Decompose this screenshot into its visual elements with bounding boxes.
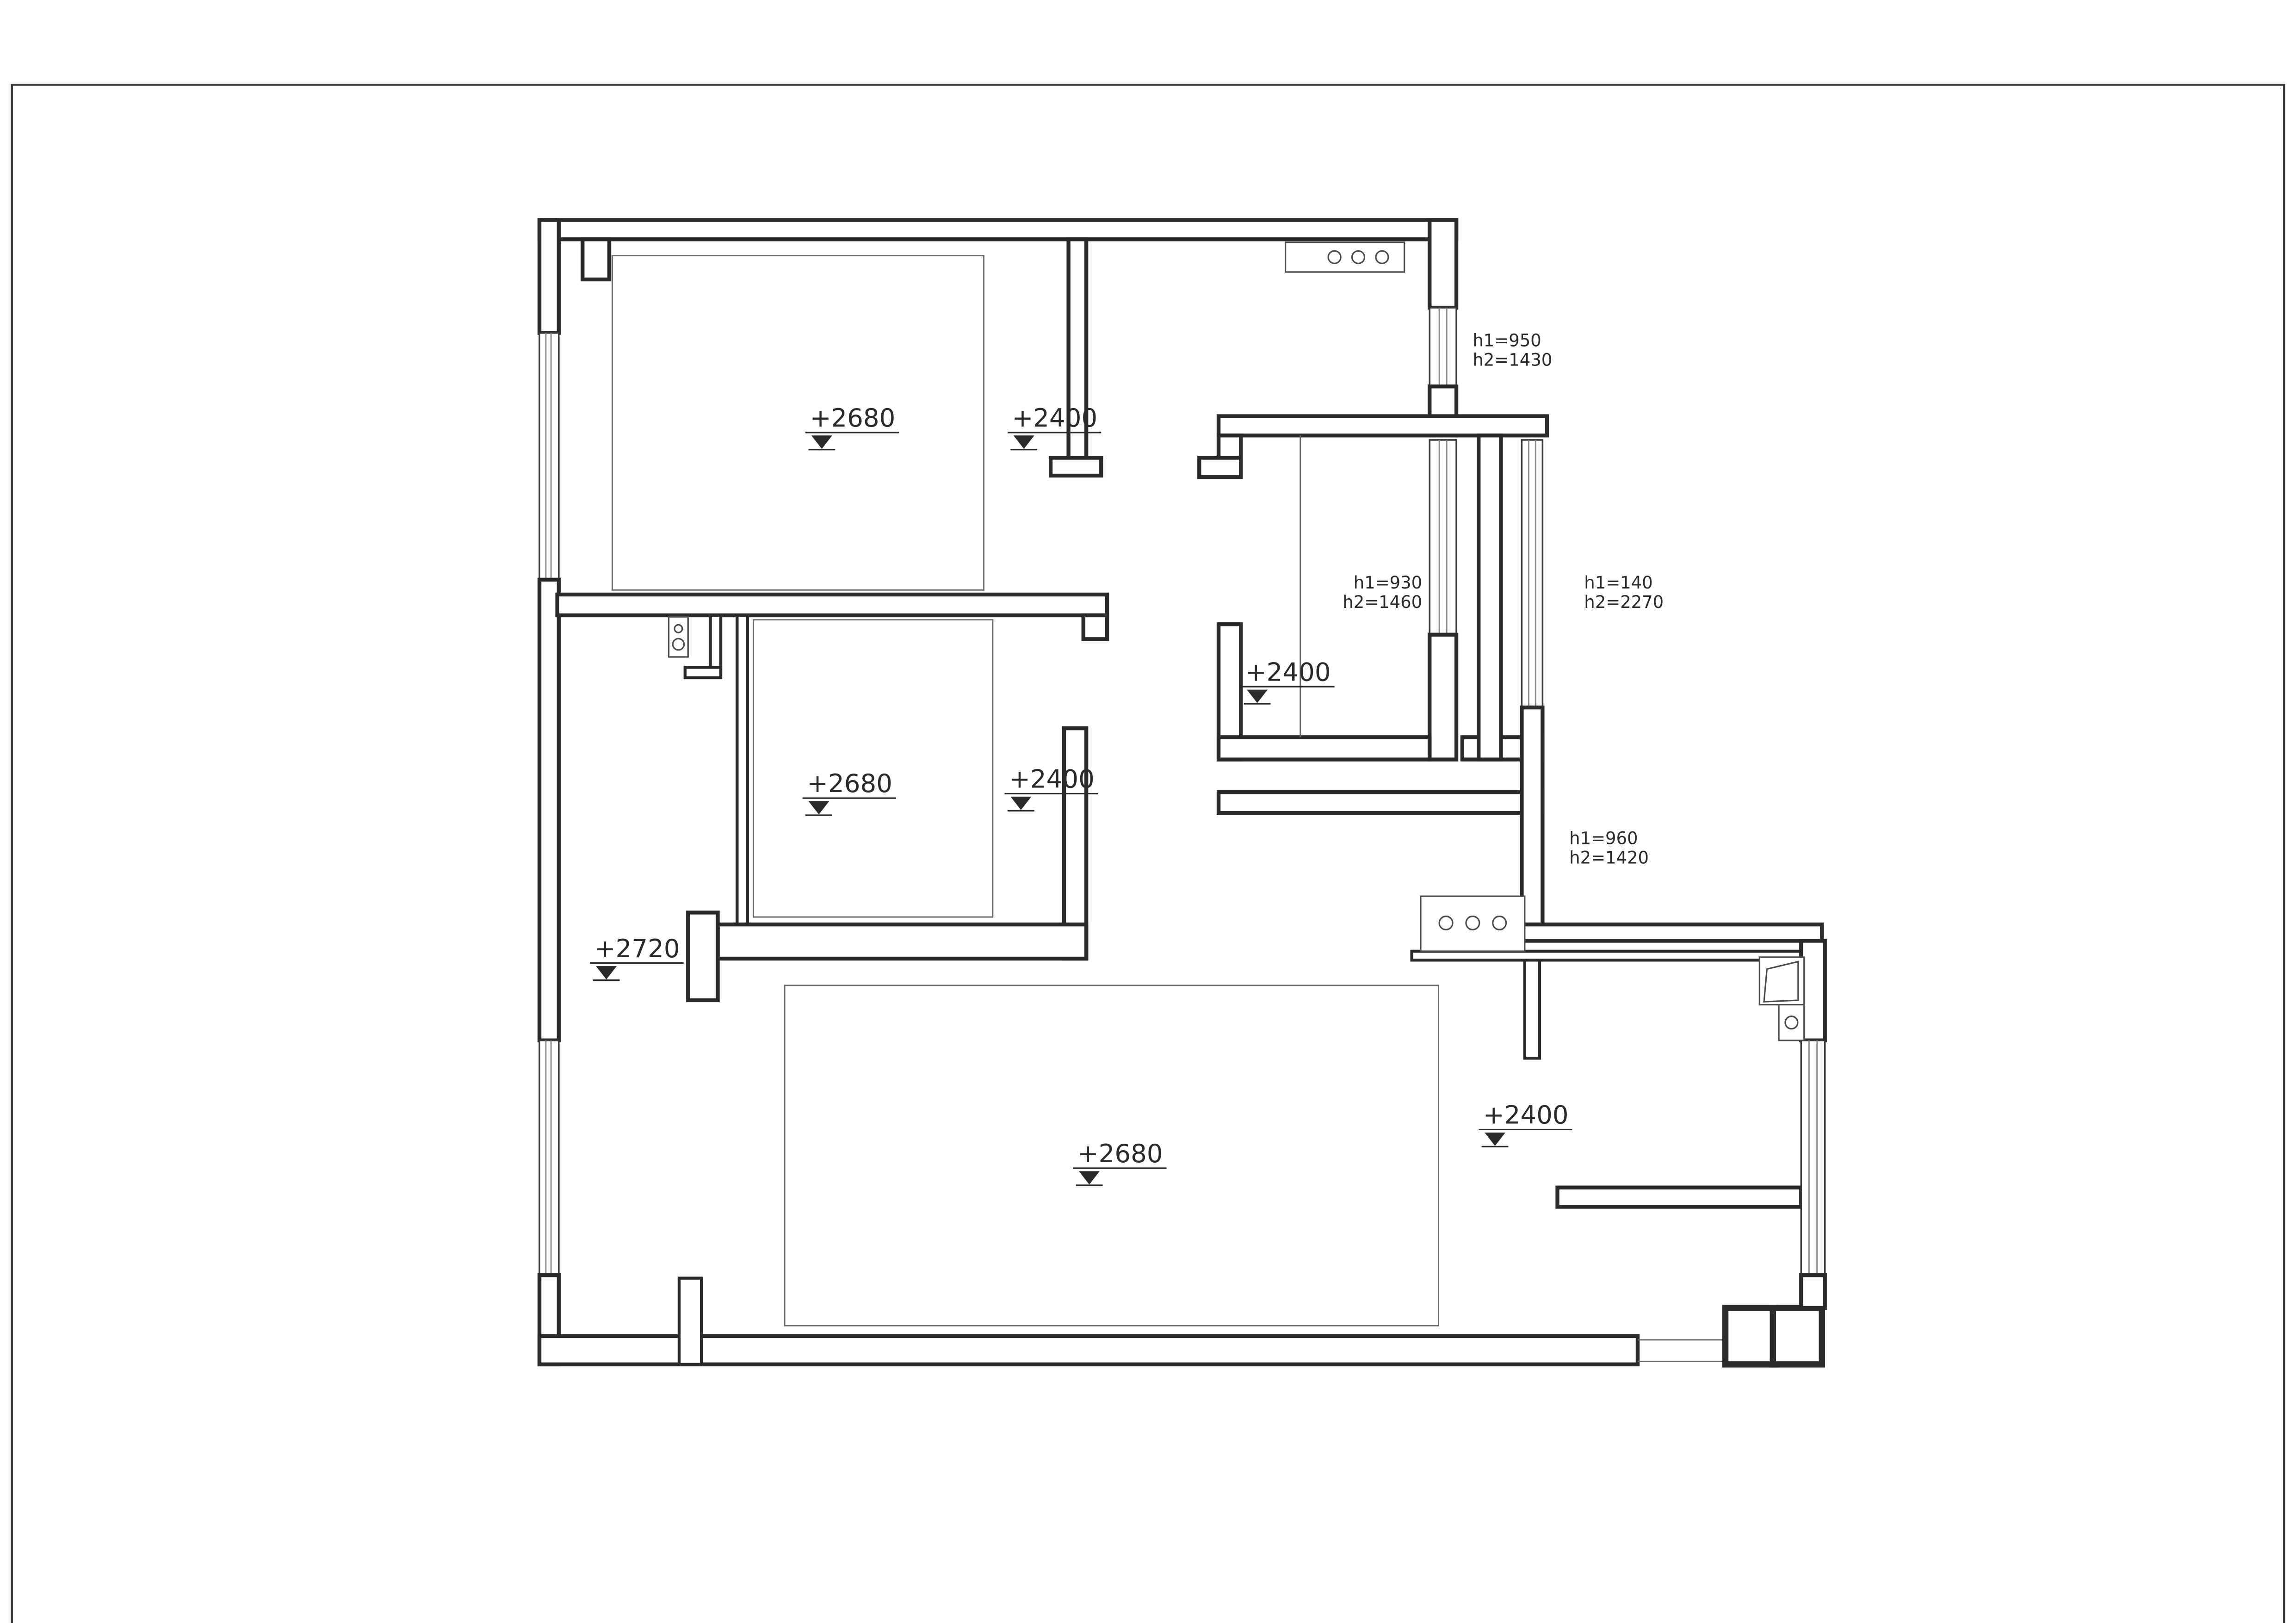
elevation-label: +2680	[803, 768, 896, 815]
sheet-border	[12, 85, 2284, 1623]
window-left-1	[539, 333, 559, 580]
wall-left-upper	[539, 220, 559, 333]
window-kitchen	[1430, 308, 1456, 386]
drawing-sheet: +2680+2400+2400+2680+2400+2720+2680+2400…	[0, 0, 2296, 1623]
wall-bedroom2-entry-stub	[710, 615, 720, 672]
window-height-label: h1=950h2=1430	[1473, 331, 1552, 370]
wall-entry-top	[1522, 924, 1822, 941]
wall-bathroom-bottom	[1219, 737, 1430, 759]
window-right-exterior	[1801, 1041, 1825, 1276]
wall-bedroom1-bottom	[557, 595, 1108, 615]
wall-bathroom-left-foot	[1199, 458, 1241, 477]
elevation-marker-icon	[1079, 1171, 1100, 1184]
window-height-line2: h2=1430	[1473, 350, 1552, 370]
window-height-line2: h2=1460	[1343, 592, 1422, 612]
window-tall-right	[1522, 440, 1542, 707]
wall-top-pier	[582, 239, 609, 279]
wall-bottom	[539, 1336, 1638, 1364]
wall-entry-stub	[1525, 960, 1540, 1058]
wall-kitchen-right	[1430, 220, 1456, 308]
wall-entry-bottom	[1557, 1188, 1801, 1207]
wall-top	[539, 220, 1456, 240]
burner-icon	[1466, 916, 1479, 929]
elevation-label-text: +2720	[594, 934, 680, 963]
elevation-label-text: +2680	[1077, 1139, 1163, 1168]
wall-bedroom2-bottom	[718, 924, 1087, 959]
window-height-line1: h1=950	[1473, 331, 1541, 351]
elevation-marker-icon	[808, 801, 829, 815]
elevation-marker-icon	[811, 435, 832, 449]
elevation-label: +2680	[805, 403, 899, 450]
wall-shaft	[1479, 435, 1501, 759]
burner-icon	[1328, 251, 1341, 263]
wall-right-middle	[1522, 707, 1542, 924]
wall-bottom-left-stub	[679, 1278, 701, 1364]
elevation-marker-icon	[1247, 690, 1268, 703]
pillar-right	[1773, 1308, 1822, 1364]
wall-left-middle	[539, 580, 559, 1041]
wall-corridor-top	[1219, 792, 1542, 813]
window-height-line1: h1=140	[1584, 573, 1652, 593]
window-height-line1: h1=930	[1354, 573, 1422, 593]
elevation-label: +2400	[1241, 657, 1334, 704]
wall-bathroom-top	[1219, 416, 1547, 436]
window-bathroom	[1430, 440, 1456, 635]
riser-pipes-box	[669, 617, 688, 657]
window-height-line2: h2=1420	[1569, 848, 1649, 867]
window-height-label: h1=930h2=1460	[1343, 573, 1422, 612]
elevation-label-text: +2680	[807, 768, 892, 798]
toilet-drain-icon	[1785, 1016, 1798, 1029]
burner-icon	[1352, 251, 1365, 263]
elevation-label: +2400	[1479, 1100, 1572, 1147]
burner-icon	[1493, 916, 1506, 929]
pipe-icon	[673, 638, 684, 650]
wall-bedroom2-entry-cap	[685, 667, 721, 677]
wall-bedroom2-left-partition	[737, 615, 747, 924]
elevation-marker-icon	[596, 966, 617, 979]
wall-bathroom-left-upper	[1219, 435, 1241, 458]
pipe-icon	[675, 625, 682, 633]
burner-icon	[1376, 251, 1388, 263]
ceiling-zone-bedroom1	[612, 256, 984, 590]
window-height-label: h1=140h2=2270	[1584, 573, 1664, 612]
elevation-label-text: +2400	[1012, 403, 1098, 433]
pillar-left	[1725, 1308, 1774, 1364]
window-height-line2: h2=2270	[1584, 592, 1664, 612]
wall-bedroom1-bottom-jamb	[1083, 615, 1107, 639]
floor-plan-canvas: +2680+2400+2400+2680+2400+2720+2680+2400…	[0, 0, 2296, 1623]
elevation-marker-icon	[1485, 1133, 1505, 1146]
window-height-line1: h1=960	[1569, 829, 1638, 849]
wall-right-exterior-lower	[1801, 1275, 1825, 1308]
elevation-label-text: +2400	[1245, 657, 1331, 687]
wall-corridor-stub	[688, 912, 718, 1000]
wall-entry-top-second	[1412, 951, 1819, 960]
burner-icon	[1439, 916, 1453, 929]
elevation-label-text: +2680	[810, 403, 896, 433]
elevation-label-text: +2400	[1483, 1100, 1569, 1130]
wall-bathroom-right-lower	[1430, 635, 1456, 760]
window-left-2	[539, 1041, 559, 1276]
elevation-marker-icon	[1014, 435, 1034, 449]
window-height-label: h1=960h2=1420	[1569, 829, 1649, 868]
elevation-label-text: +2400	[1009, 764, 1095, 794]
elevation-label: +2720	[590, 934, 683, 980]
wall-bedroom1-right-foot	[1051, 458, 1101, 476]
elevation-label: +2680	[1073, 1139, 1166, 1185]
elevation-marker-icon	[1010, 797, 1031, 810]
